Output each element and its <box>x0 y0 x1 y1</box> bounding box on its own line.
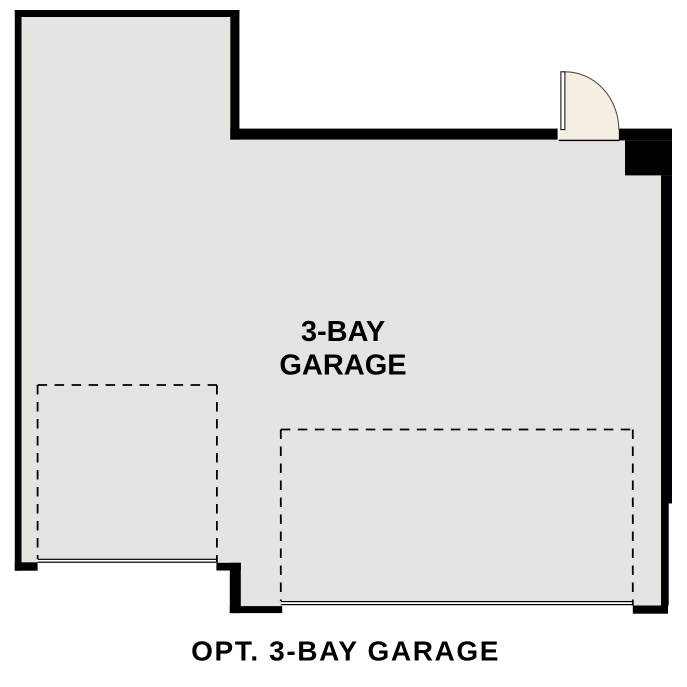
svg-text:3-BAY: 3-BAY <box>301 316 385 348</box>
svg-text:OPT. 3-BAY GARAGE: OPT. 3-BAY GARAGE <box>191 636 500 667</box>
svg-text:GARAGE: GARAGE <box>279 349 406 381</box>
